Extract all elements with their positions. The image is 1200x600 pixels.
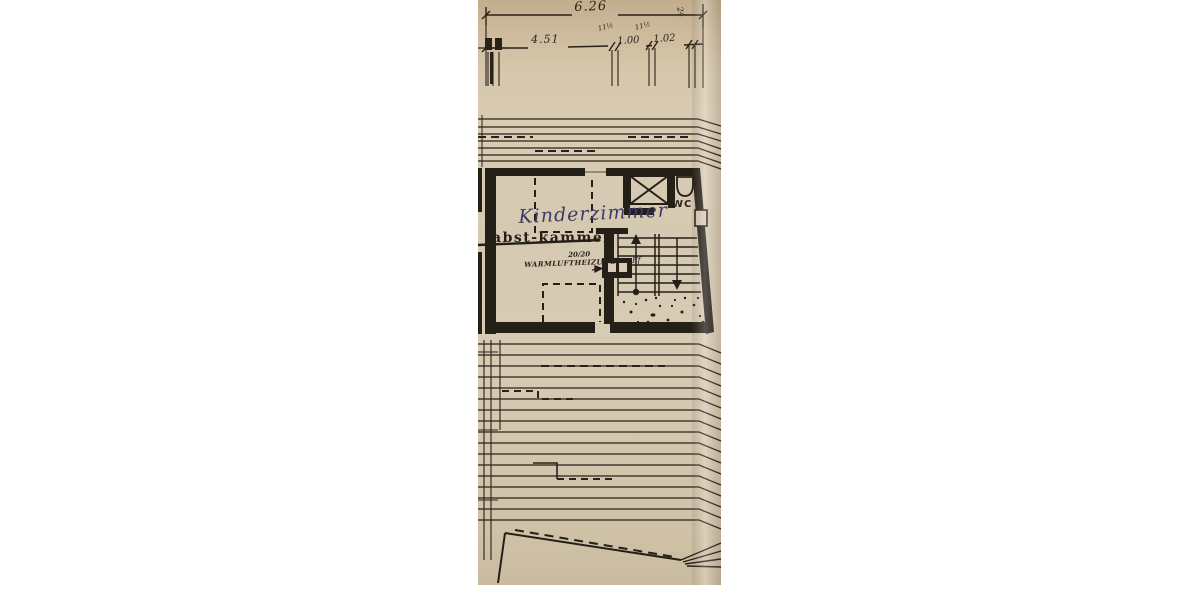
neighbor-wall-strip [478, 252, 482, 334]
dimension-lines-top [478, 4, 707, 88]
stair-note: Ff [632, 256, 641, 265]
lower-elevation-lines [478, 340, 721, 560]
plan-linework [478, 0, 721, 585]
fold-corner-lines [681, 543, 721, 567]
wall-thickness-mark: 24 [675, 6, 686, 18]
upper-elevation-lines [478, 115, 721, 169]
right-wall [692, 168, 714, 334]
neighbor-wall-strip [478, 168, 482, 212]
dim-total-label: 6.26 [574, 0, 607, 15]
top-wall-left [485, 168, 585, 176]
stair-down-arrow [672, 238, 682, 290]
wc-window [695, 210, 707, 226]
top-wall-right [606, 168, 696, 176]
left-wall [485, 168, 496, 334]
left-dimension-chain [478, 340, 500, 560]
dim-segment-label: 1.02 [653, 33, 676, 45]
bottom-wall-left [485, 322, 595, 333]
scanned-floor-plan-page: 6.26 4.51 1.00 1.02 11½ 11½ 24 Kinderzim… [0, 0, 1200, 600]
leader-arrow-icon [592, 266, 602, 272]
bottom-wall-right [610, 322, 710, 333]
stair-partition-lower [604, 276, 614, 324]
room-label-abstellkammer-struck: abst-kammer [492, 230, 612, 246]
dim-segment-label: 4.51 [531, 33, 560, 46]
dim-segment-label: 1.00 [617, 35, 640, 47]
room-label-wc: WC [672, 199, 692, 210]
bottom-diagonal-edges [498, 530, 721, 583]
blueprint-paper: 6.26 4.51 1.00 1.02 11½ 11½ 24 Kinderzim… [478, 0, 721, 585]
toilet-icon [677, 177, 693, 196]
